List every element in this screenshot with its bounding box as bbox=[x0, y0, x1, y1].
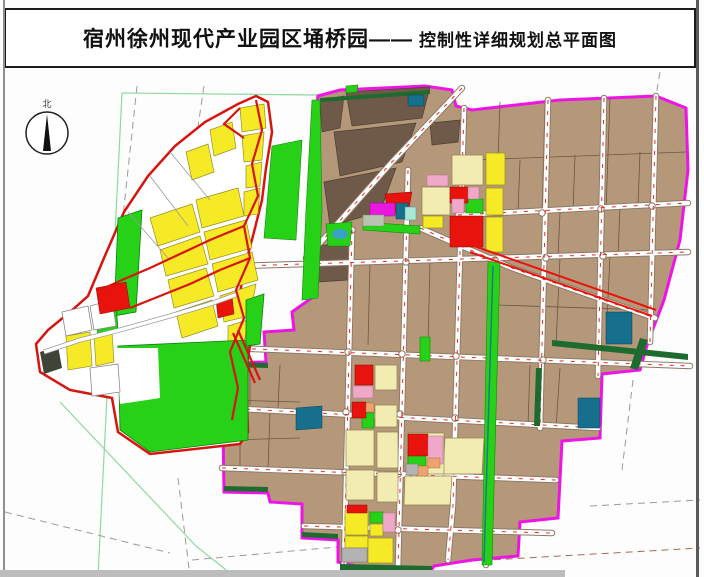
title-box: 宿州徐州现代产业园区埇桥园—— 控制性详细规划总平面图 bbox=[4, 8, 696, 68]
parcel-yellow-east bbox=[368, 538, 393, 563]
parcel-commercial-magenta bbox=[370, 203, 395, 216]
parcel-red bbox=[408, 434, 428, 456]
green-inlet-white bbox=[116, 348, 160, 404]
parcel-pink bbox=[452, 199, 464, 213]
parcel-red bbox=[450, 216, 483, 247]
road-junction bbox=[649, 203, 655, 209]
survey-line-dashed bbox=[590, 500, 700, 506]
parcel-yellow-east bbox=[370, 524, 383, 536]
parcel-yellow-east bbox=[345, 536, 368, 548]
parcel-white-west bbox=[90, 364, 120, 396]
parcel-cream bbox=[443, 438, 484, 474]
road-junction bbox=[399, 351, 405, 357]
road-junction bbox=[453, 353, 459, 359]
parcel-green bbox=[466, 199, 483, 213]
parcel-cream bbox=[346, 430, 374, 466]
parcel-cyan bbox=[405, 207, 416, 220]
parcel-cream bbox=[377, 432, 398, 468]
compass-label: 北 bbox=[42, 99, 51, 109]
parcel-green bbox=[264, 140, 302, 240]
parcel-green bbox=[370, 512, 383, 523]
sheet-border-left bbox=[3, 0, 5, 577]
sheet-border-bottom bbox=[0, 570, 565, 577]
parcel-village bbox=[430, 120, 460, 145]
parcel-cream bbox=[377, 472, 398, 502]
parcel-cream bbox=[375, 405, 397, 427]
parcel-yellow-east bbox=[486, 217, 503, 252]
page-subtitle: 控制性详细规划总平面图 bbox=[419, 26, 617, 51]
survey-line-dashed bbox=[178, 478, 190, 577]
parcel-graygreen bbox=[363, 215, 384, 226]
parcel-pink bbox=[383, 513, 395, 532]
parcel-teal bbox=[296, 406, 322, 430]
survey-line-dashed bbox=[192, 546, 348, 560]
road-junction bbox=[539, 210, 545, 216]
parcel-cream bbox=[452, 155, 483, 185]
parcel-yellow-east bbox=[345, 510, 368, 535]
parcel-red bbox=[355, 365, 373, 385]
parcel-green bbox=[346, 85, 358, 93]
road-junction bbox=[395, 527, 401, 533]
parcel-teal bbox=[408, 95, 424, 106]
parcel-gray bbox=[406, 464, 418, 475]
parcel-gray bbox=[342, 548, 367, 562]
parcel-pink bbox=[427, 175, 448, 186]
parcel-yellow-east bbox=[423, 216, 443, 228]
survey-line-dashed bbox=[622, 380, 633, 470]
planning-map: 北 bbox=[0, 0, 704, 577]
parcel-orange bbox=[427, 458, 440, 468]
survey-line-green bbox=[122, 93, 318, 95]
survey-line-dashed bbox=[656, 72, 660, 96]
parcel-pink bbox=[353, 386, 373, 398]
planning-sheet: 北 宿州徐州现代产业园区埇桥园—— 控制性详细规划总平面图 bbox=[0, 0, 704, 577]
parcel-cream bbox=[404, 476, 452, 505]
parcel-cream bbox=[375, 365, 397, 390]
parcel-green bbox=[302, 100, 322, 300]
road-junction bbox=[598, 206, 604, 212]
parcel-teal bbox=[606, 312, 632, 344]
parcel-pink bbox=[468, 187, 479, 199]
parcel-yellow-east bbox=[486, 153, 505, 185]
parcel-green-west bbox=[246, 294, 264, 346]
parcel-cream bbox=[346, 470, 374, 500]
sheet-border-right bbox=[696, 0, 699, 577]
parcel-red bbox=[347, 505, 367, 513]
street-green-verge bbox=[224, 486, 268, 492]
parcel-red-west bbox=[96, 282, 130, 314]
survey-line-dashed bbox=[5, 512, 170, 553]
page-title: 宿州徐州现代产业园区埇桥园—— bbox=[83, 23, 413, 53]
road-junction bbox=[345, 349, 351, 355]
parcel-red bbox=[352, 402, 366, 418]
parcel-yellow-east bbox=[486, 188, 503, 215]
parcel-cream bbox=[422, 187, 450, 215]
pond bbox=[332, 229, 348, 239]
parcel-orange bbox=[366, 403, 374, 412]
parcel-green bbox=[420, 337, 430, 361]
parcel-teal bbox=[578, 398, 600, 428]
